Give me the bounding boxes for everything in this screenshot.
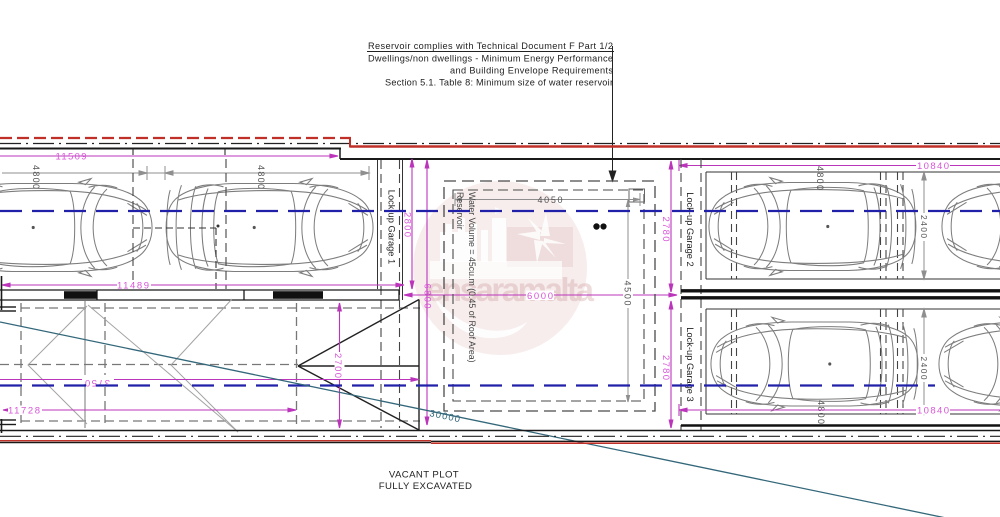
svg-text:2780: 2780 <box>660 217 671 242</box>
svg-text:Reservoir complies with Techni: Reservoir complies with Technical Docume… <box>368 41 613 51</box>
svg-text:6000: 6000 <box>527 291 553 302</box>
svg-text:2780: 2780 <box>660 355 671 380</box>
svg-text:4800: 4800 <box>31 165 41 189</box>
svg-text:4800: 4800 <box>816 400 826 424</box>
svg-text:Water Volume = 45cu.m (0.45 of: Water Volume = 45cu.m (0.45 of Roof Area… <box>467 192 477 363</box>
svg-text:10840: 10840 <box>917 161 949 172</box>
svg-text:4500: 4500 <box>623 281 633 306</box>
svg-text:2800: 2800 <box>402 212 413 237</box>
svg-text:2700: 2700 <box>332 353 343 378</box>
svg-text:4800: 4800 <box>256 165 266 189</box>
svg-text:Lock-up Garage 3: Lock-up Garage 3 <box>685 327 695 401</box>
svg-text:10840: 10840 <box>917 406 949 417</box>
svg-text:6800: 6800 <box>422 284 433 309</box>
svg-text:ensaramalta: ensaramalta <box>426 271 595 308</box>
svg-text:Lock-up Garage 2: Lock-up Garage 2 <box>685 192 695 266</box>
svg-text:FULLY EXCAVATED: FULLY EXCAVATED <box>379 481 473 492</box>
svg-text:Section 5.1. Table 8: Minimum: Section 5.1. Table 8: Minimum size of wa… <box>385 78 613 88</box>
svg-text:Lock-up Garage 1: Lock-up Garage 1 <box>387 190 397 264</box>
svg-text:VACANT PLOT: VACANT PLOT <box>389 470 459 481</box>
svg-text:2400: 2400 <box>919 215 929 238</box>
svg-text:4050: 4050 <box>538 195 563 205</box>
svg-text:4800: 4800 <box>815 166 825 190</box>
svg-text:and Building Envelope Requirem: and Building Envelope Requirements <box>450 66 613 76</box>
svg-text:2400: 2400 <box>919 357 929 380</box>
svg-text:Dwellings/non dwellings - Mini: Dwellings/non dwellings - Minimum Energy… <box>368 54 613 64</box>
